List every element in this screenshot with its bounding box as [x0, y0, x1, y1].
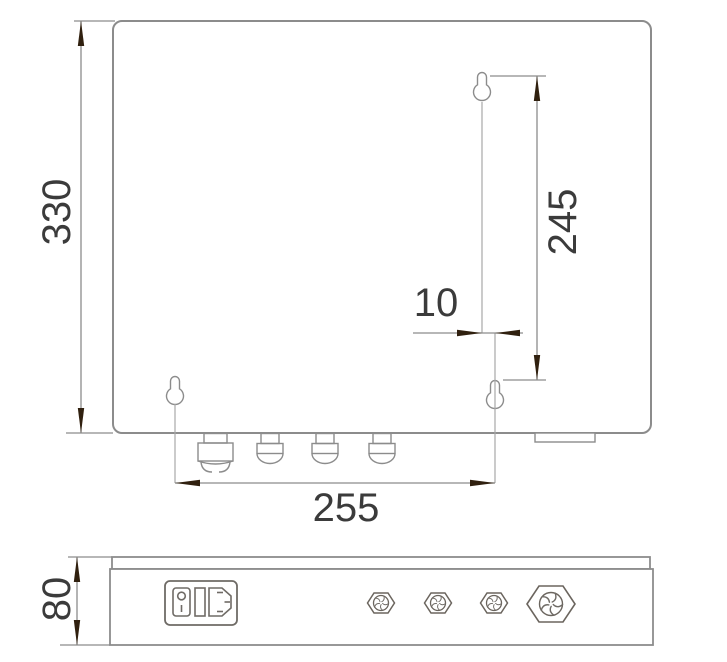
dimension-keyhole-horizontal-255: 255	[175, 480, 495, 530]
front-view: 330 245 10 255	[35, 21, 651, 530]
hex-gland-small-2	[425, 593, 452, 613]
dim-label-keyhole-horizontal: 255	[313, 486, 380, 530]
arrow-down-icon	[78, 408, 84, 433]
dim-label-depth: 80	[35, 577, 79, 622]
cable-gland-large	[198, 434, 233, 473]
dim-label-keyhole-offset: 10	[414, 281, 459, 325]
arrow-right-icon	[470, 480, 495, 486]
technical-drawing-page: 330 245 10 255	[0, 0, 727, 662]
cable-gland-small-2	[312, 434, 338, 464]
arrow-left-icon	[175, 480, 200, 486]
hex-gland-small-3	[481, 593, 508, 613]
bottom-view: 80	[35, 557, 653, 645]
dimension-depth-80: 80	[35, 557, 112, 645]
enclosure-backplate-strip	[112, 557, 650, 569]
enclosure-dimension-drawing: 330 245 10 255	[0, 0, 727, 662]
cable-gland-small-1	[257, 434, 283, 464]
bottom-edge-tab	[535, 433, 595, 442]
dim-label-keyhole-vertical: 245	[541, 189, 585, 256]
arrow-up-icon	[78, 21, 84, 46]
dimension-height-330: 330	[35, 21, 115, 433]
power-inlet-module	[165, 581, 237, 625]
dim-label-height: 330	[35, 179, 79, 246]
cable-gland-small-3	[369, 434, 395, 464]
arrow-down-icon	[74, 620, 80, 645]
hex-gland-small-1	[368, 593, 395, 613]
